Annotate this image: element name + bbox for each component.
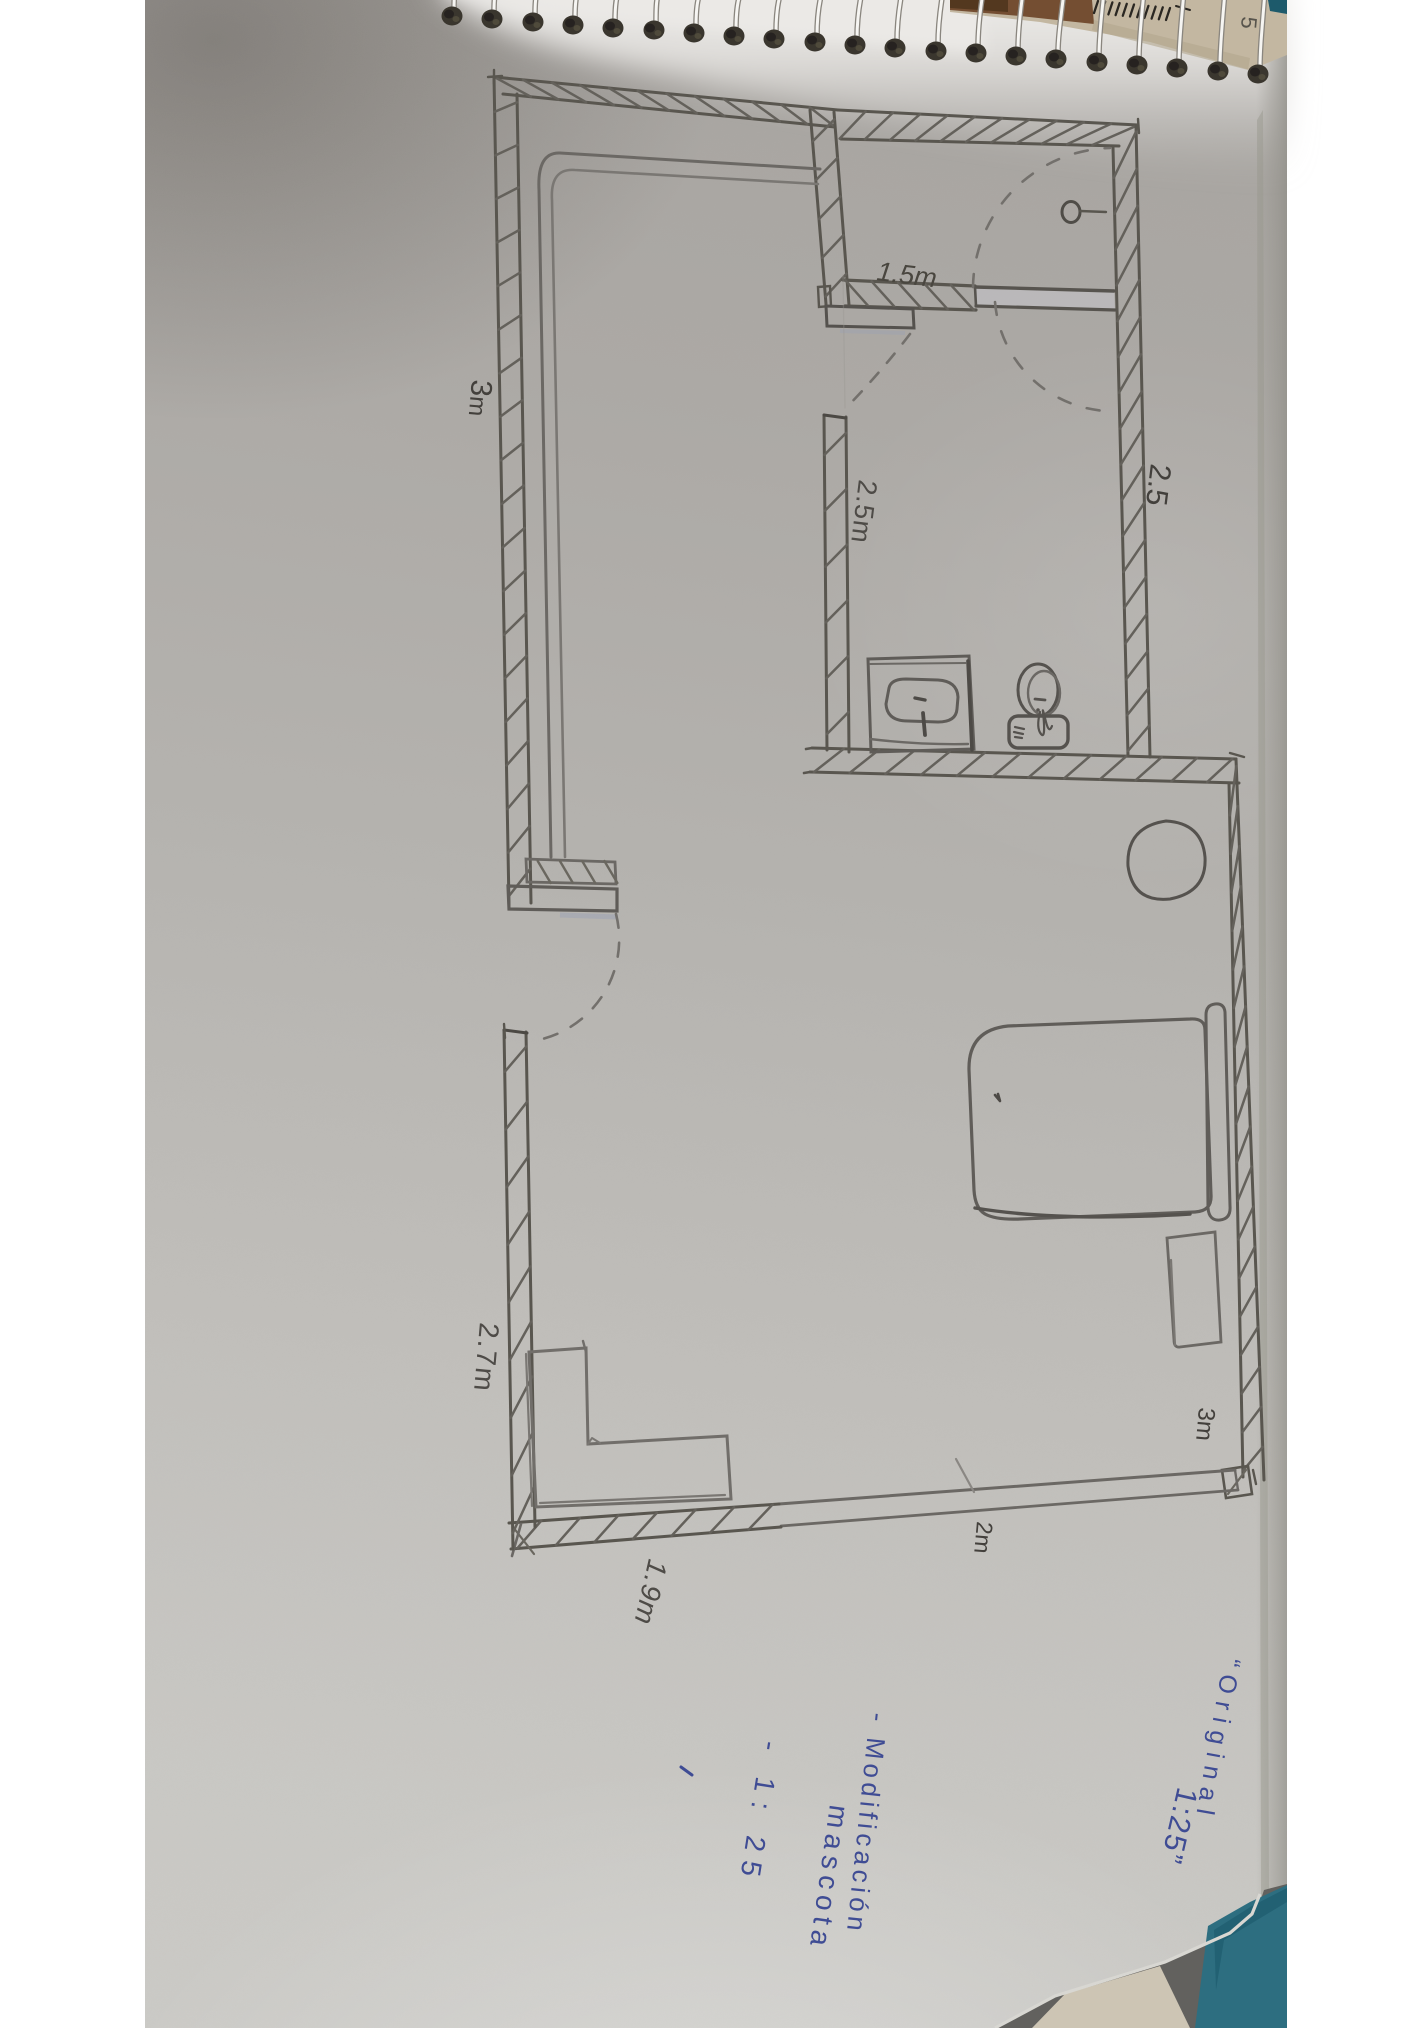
svg-text:2.7m: 2.7m	[468, 1321, 505, 1394]
svg-text:2m: 2m	[969, 1521, 998, 1555]
svg-text:3m: 3m	[1190, 1406, 1220, 1442]
svg-text:5: 5	[1236, 16, 1262, 30]
svg-text:2.5: 2.5	[1139, 462, 1177, 507]
